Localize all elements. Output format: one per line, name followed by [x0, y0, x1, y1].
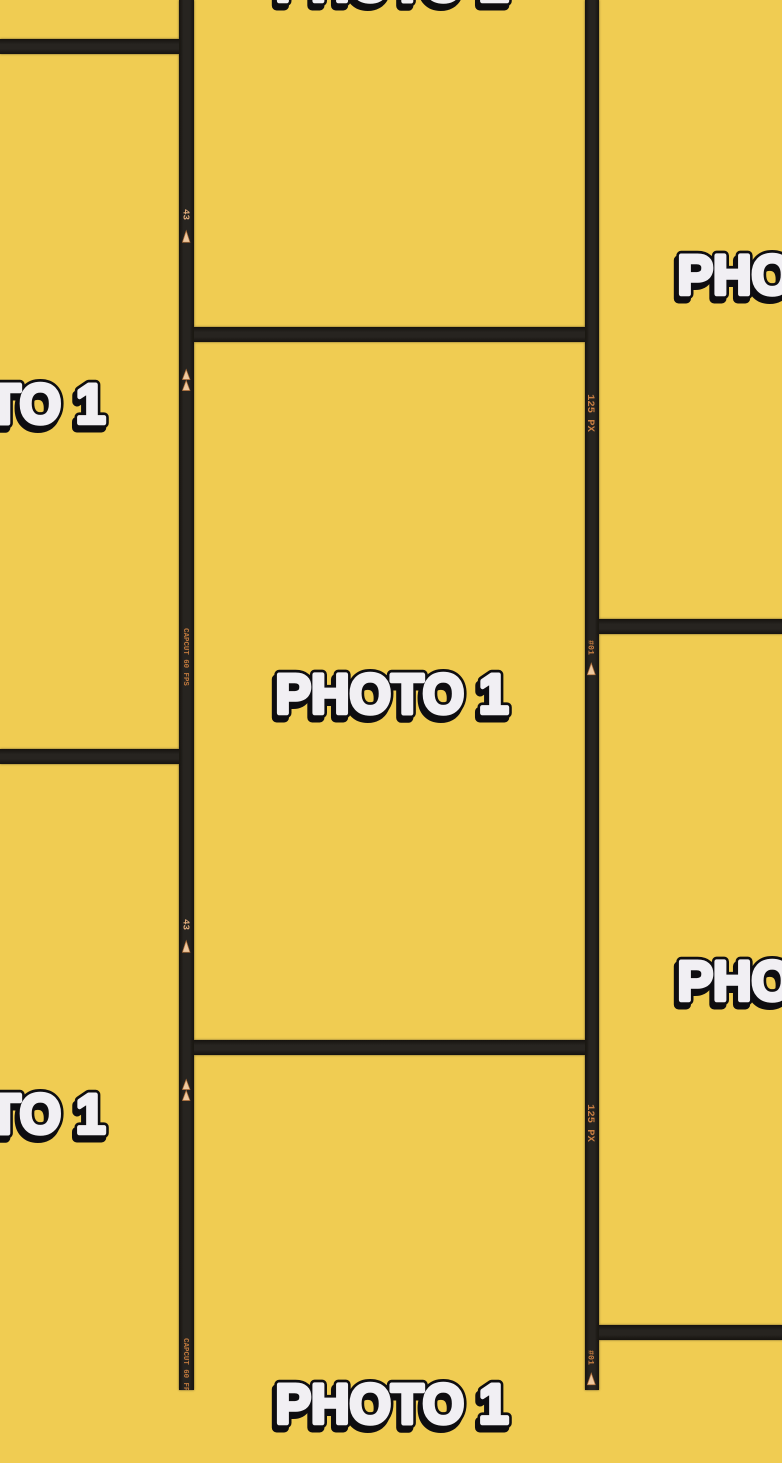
svg-text:#01: #01 [586, 640, 595, 655]
svg-text:CAPCUT 60 FPS: CAPCUT 60 FPS [181, 628, 189, 686]
svg-text:#01: #01 [586, 1350, 595, 1365]
svg-text:CAPCUT 60 FPS: CAPCUT 60 FPS [181, 1338, 189, 1390]
svg-text:125 PX: 125 PX [584, 1104, 596, 1143]
svg-text:125 PX: 125 PX [584, 394, 596, 433]
svg-text:43: 43 [180, 919, 191, 931]
svg-text:43: 43 [180, 209, 191, 221]
